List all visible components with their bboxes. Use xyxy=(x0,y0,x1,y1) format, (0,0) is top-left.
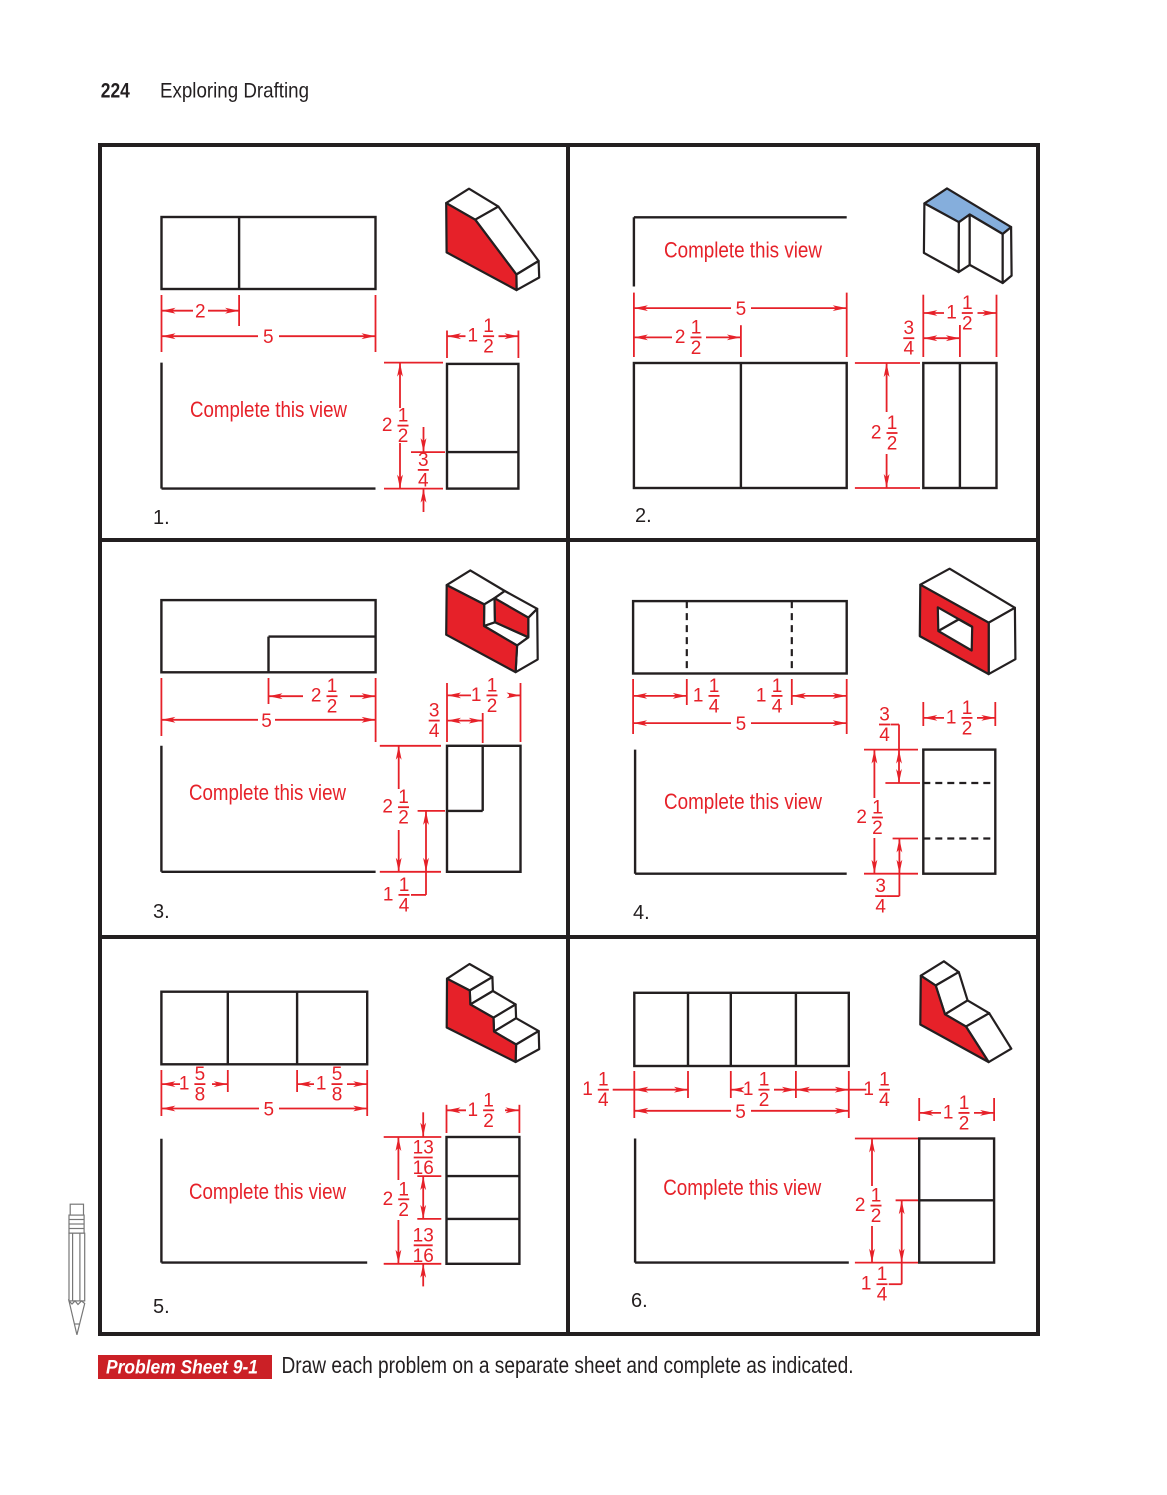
svg-text:2: 2 xyxy=(327,697,338,718)
svg-text:4: 4 xyxy=(418,470,429,491)
svg-text:1: 1 xyxy=(962,698,973,719)
svg-text:6.: 6. xyxy=(631,1290,648,1312)
svg-text:5: 5 xyxy=(736,714,747,735)
svg-text:3: 3 xyxy=(904,318,915,339)
svg-text:1: 1 xyxy=(959,1093,970,1114)
svg-text:1: 1 xyxy=(582,1079,593,1100)
svg-text:2: 2 xyxy=(887,434,898,455)
svg-text:4: 4 xyxy=(399,895,410,916)
svg-text:4: 4 xyxy=(904,339,915,360)
svg-text:1: 1 xyxy=(943,1102,954,1123)
svg-text:1: 1 xyxy=(693,685,704,706)
svg-text:Complete this view: Complete this view xyxy=(663,1175,821,1200)
svg-text:1: 1 xyxy=(398,787,409,808)
svg-text:1: 1 xyxy=(398,1179,409,1200)
svg-text:1: 1 xyxy=(483,316,494,337)
svg-text:1: 1 xyxy=(759,1070,770,1091)
svg-text:4: 4 xyxy=(598,1090,609,1111)
svg-text:5: 5 xyxy=(195,1064,206,1085)
svg-text:1: 1 xyxy=(871,1186,882,1207)
svg-text:3.: 3. xyxy=(153,901,170,923)
svg-text:1: 1 xyxy=(861,1274,872,1295)
svg-text:2: 2 xyxy=(962,314,973,335)
svg-text:1: 1 xyxy=(383,884,394,905)
svg-text:1: 1 xyxy=(877,1264,888,1285)
svg-text:Complete this view: Complete this view xyxy=(664,238,822,263)
svg-text:1: 1 xyxy=(743,1079,754,1100)
svg-text:1: 1 xyxy=(483,1090,494,1111)
svg-text:2: 2 xyxy=(675,327,686,348)
svg-text:1: 1 xyxy=(399,875,410,896)
svg-text:Complete this view: Complete this view xyxy=(190,397,347,422)
svg-text:3: 3 xyxy=(879,705,890,726)
svg-text:2: 2 xyxy=(195,302,206,323)
svg-text:1: 1 xyxy=(962,293,973,314)
svg-text:2: 2 xyxy=(872,818,883,839)
svg-text:3: 3 xyxy=(418,450,429,471)
svg-text:2: 2 xyxy=(856,807,867,828)
svg-text:Problem Sheet 9-1: Problem Sheet 9-1 xyxy=(106,1358,258,1379)
svg-text:4: 4 xyxy=(875,897,886,918)
svg-text:1: 1 xyxy=(487,675,498,696)
svg-text:2: 2 xyxy=(382,415,393,436)
svg-text:1: 1 xyxy=(879,1070,890,1091)
svg-text:8: 8 xyxy=(195,1085,206,1106)
svg-text:1: 1 xyxy=(468,1100,479,1121)
svg-text:2: 2 xyxy=(855,1195,866,1216)
svg-text:Exploring Drafting: Exploring Drafting xyxy=(160,79,309,103)
svg-text:1: 1 xyxy=(756,685,767,706)
svg-text:2: 2 xyxy=(483,337,494,358)
svg-text:1: 1 xyxy=(327,676,338,697)
svg-text:5: 5 xyxy=(736,299,747,320)
svg-text:2: 2 xyxy=(383,1189,394,1210)
svg-text:2: 2 xyxy=(398,1200,409,1221)
svg-text:1: 1 xyxy=(709,676,720,697)
svg-text:1: 1 xyxy=(872,798,883,819)
svg-text:16: 16 xyxy=(413,1158,434,1179)
svg-text:Draw each problem on a separat: Draw each problem on a separate sheet an… xyxy=(282,1352,854,1378)
svg-text:4: 4 xyxy=(429,721,440,742)
svg-text:3: 3 xyxy=(875,876,886,897)
svg-text:13: 13 xyxy=(413,1225,434,1246)
svg-text:1: 1 xyxy=(471,685,482,706)
svg-text:2: 2 xyxy=(382,797,393,818)
svg-text:Complete this view: Complete this view xyxy=(189,780,346,805)
svg-text:1: 1 xyxy=(887,413,898,434)
svg-text:Complete this view: Complete this view xyxy=(664,789,822,814)
svg-text:1: 1 xyxy=(398,406,409,427)
svg-text:1.: 1. xyxy=(153,507,170,529)
svg-text:5: 5 xyxy=(264,1100,275,1121)
svg-text:5: 5 xyxy=(263,327,274,348)
svg-text:2: 2 xyxy=(962,718,973,739)
svg-text:2: 2 xyxy=(959,1113,970,1134)
svg-text:16: 16 xyxy=(413,1246,434,1267)
svg-text:13: 13 xyxy=(413,1138,434,1159)
svg-text:2: 2 xyxy=(398,808,409,829)
svg-text:1: 1 xyxy=(772,676,783,697)
svg-text:5: 5 xyxy=(332,1064,343,1085)
svg-text:1: 1 xyxy=(946,707,957,728)
svg-text:8: 8 xyxy=(332,1085,343,1106)
svg-text:4: 4 xyxy=(772,696,783,717)
svg-text:1: 1 xyxy=(468,326,479,347)
svg-text:2: 2 xyxy=(398,426,409,447)
svg-text:2.: 2. xyxy=(635,505,652,527)
svg-text:5: 5 xyxy=(261,711,272,732)
svg-text:2: 2 xyxy=(691,338,702,359)
svg-text:3: 3 xyxy=(429,701,440,722)
svg-text:2: 2 xyxy=(759,1090,770,1111)
svg-text:4: 4 xyxy=(709,696,720,717)
svg-text:4: 4 xyxy=(877,1285,888,1306)
svg-text:4: 4 xyxy=(879,725,890,746)
svg-text:5: 5 xyxy=(735,1102,746,1123)
svg-text:2: 2 xyxy=(483,1111,494,1132)
svg-text:2: 2 xyxy=(871,423,882,444)
svg-text:4: 4 xyxy=(879,1090,890,1111)
svg-text:2: 2 xyxy=(311,686,322,707)
svg-text:2: 2 xyxy=(487,696,498,717)
svg-text:1: 1 xyxy=(946,303,957,324)
svg-text:1: 1 xyxy=(316,1074,327,1095)
svg-text:1: 1 xyxy=(863,1079,874,1100)
svg-text:224: 224 xyxy=(101,79,130,103)
svg-text:5.: 5. xyxy=(153,1296,170,1318)
svg-text:2: 2 xyxy=(871,1206,882,1227)
svg-text:1: 1 xyxy=(179,1074,190,1095)
svg-text:4.: 4. xyxy=(633,902,650,924)
svg-text:1: 1 xyxy=(691,317,702,338)
svg-text:Complete this view: Complete this view xyxy=(189,1179,346,1204)
svg-text:1: 1 xyxy=(598,1070,609,1091)
